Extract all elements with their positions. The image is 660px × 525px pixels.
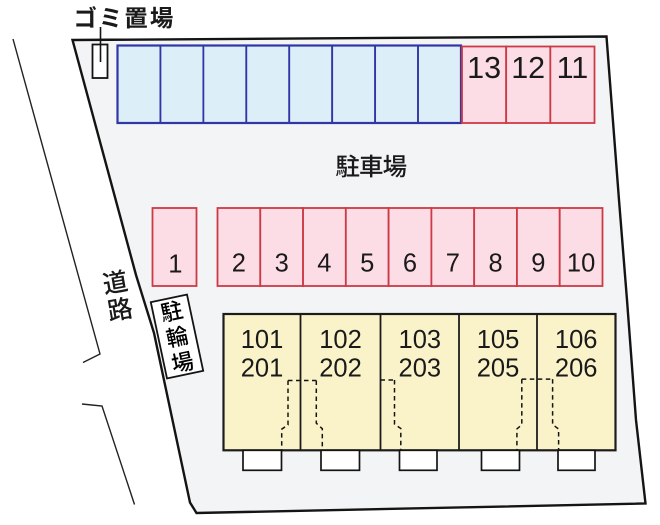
svg-text:13: 13 [467,51,501,85]
svg-text:5: 5 [360,250,374,278]
svg-text:102: 102 [319,326,362,354]
svg-text:2: 2 [232,250,246,278]
svg-text:1: 1 [168,251,182,279]
svg-text:11: 11 [557,51,589,85]
svg-text:6: 6 [403,250,417,278]
svg-text:205: 205 [477,354,520,382]
svg-text:203: 203 [399,354,442,382]
svg-text:3: 3 [275,250,289,278]
svg-text:106: 106 [555,326,598,354]
svg-text:12: 12 [511,51,545,85]
svg-text:201: 201 [241,354,284,382]
svg-text:10: 10 [567,250,595,278]
svg-text:105: 105 [477,326,520,354]
svg-text:206: 206 [555,354,598,382]
svg-text:7: 7 [446,250,460,278]
svg-text:4: 4 [317,250,331,278]
svg-text:8: 8 [489,250,503,278]
svg-text:101: 101 [241,326,284,354]
svg-text:202: 202 [319,354,362,382]
svg-text:103: 103 [399,326,442,354]
svg-text:9: 9 [531,250,545,278]
